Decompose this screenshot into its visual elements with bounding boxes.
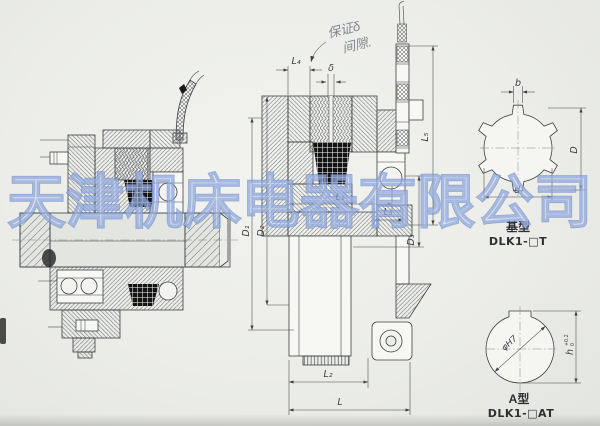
bearing-ball: [61, 278, 77, 294]
dim-label-D: D: [569, 146, 580, 153]
terminal-block: [409, 100, 423, 120]
dim-label-h: h: [565, 349, 576, 355]
lead-wire: [173, 71, 204, 143]
handwritten-annotation: 保证δ 间隙.: [311, 17, 373, 62]
serration-teeth: [303, 356, 349, 365]
bolt: [50, 152, 68, 164]
handwritten-note-line2: 间隙.: [341, 34, 373, 56]
caption-basic-model: DLK1-□T: [489, 235, 547, 248]
dim-label-delta: δ: [328, 63, 334, 74]
bearing-ball: [81, 278, 97, 294]
dim-label-l5: L₅: [420, 132, 431, 141]
dim-label-l: L: [337, 397, 342, 408]
dim-label-l2: L₂: [323, 369, 332, 380]
bore-profile-view: φH7 h +0.2 0 A型 DLK1-□AT: [486, 306, 581, 420]
left-view-lower-half: [50, 267, 183, 358]
dim-label-b: b: [515, 78, 521, 89]
caption-a-type: A型: [509, 391, 530, 406]
note-leader-line: [311, 42, 326, 62]
dim-label-h-tol-lower: 0: [570, 343, 576, 346]
ink-smudge: [42, 249, 56, 267]
bearing-ball: [159, 282, 177, 300]
mounting-bracket: [372, 236, 431, 360]
output-sleeve: [289, 236, 351, 365]
scan-edge-shadow: [0, 414, 600, 426]
drawing-canvas: L₄ δ D₁ D₂ L₁ L₃ D₃ L₅ L₂ L b D d: [0, 0, 600, 426]
dim-label-l4: L₄: [291, 56, 300, 67]
dim-label-d3: D₃: [406, 234, 417, 245]
scanned-clutch-drawing: L₄ δ D₁ D₂ L₁ L₃ D₃ L₅ L₂ L b D d: [0, 0, 600, 426]
scan-smudge: [0, 318, 6, 344]
company-watermark: 天津机床电器有限公司: [7, 170, 592, 235]
dim-label-h-tol-upper: +0.2: [564, 334, 570, 346]
lead-wire-conduit: [396, 1, 423, 153]
